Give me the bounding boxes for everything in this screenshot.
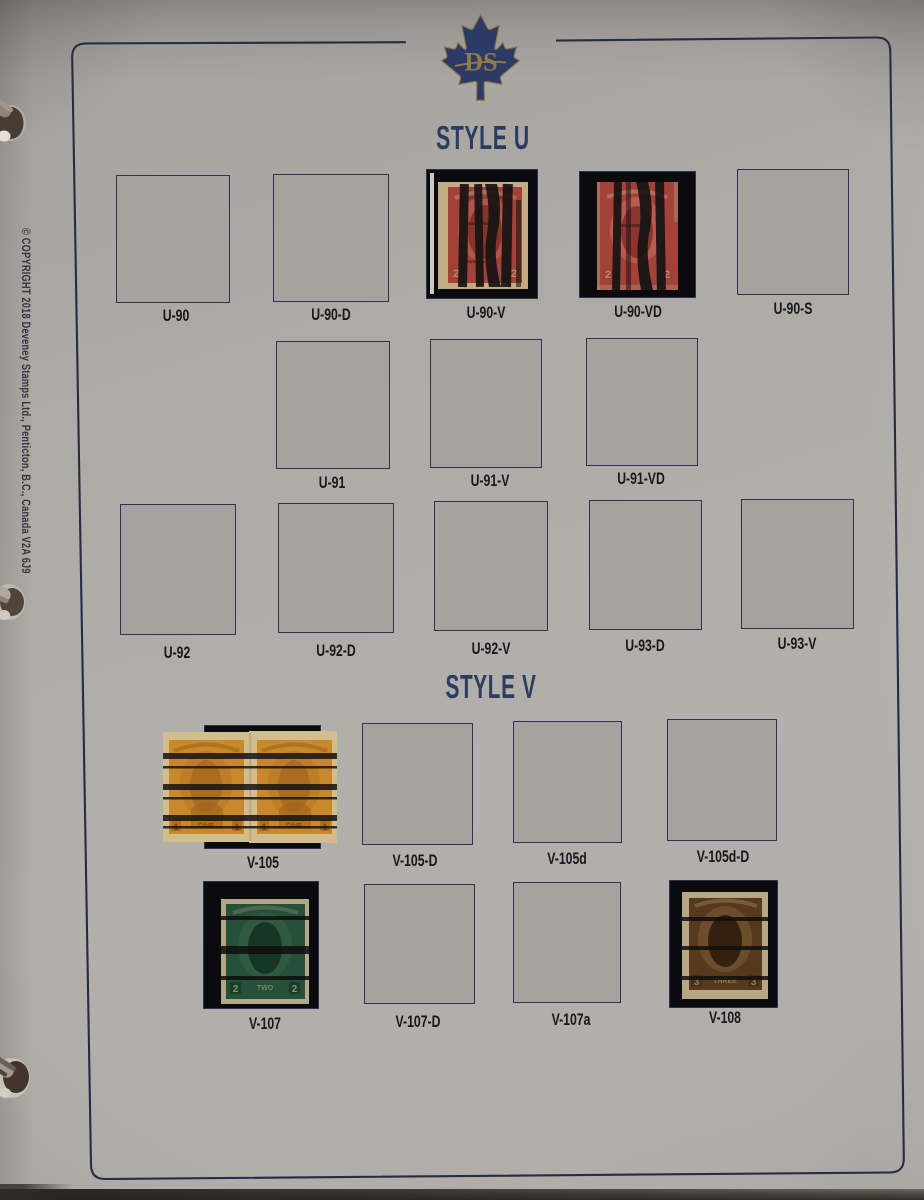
svg-text:ONE: ONE xyxy=(286,821,302,830)
svg-text:TWO: TWO xyxy=(257,985,274,992)
svg-text:2: 2 xyxy=(453,268,459,280)
svg-text:2: 2 xyxy=(605,269,611,281)
svg-text:ONE: ONE xyxy=(198,821,214,830)
svg-text:2: 2 xyxy=(292,984,298,995)
svg-text:2: 2 xyxy=(233,984,239,995)
